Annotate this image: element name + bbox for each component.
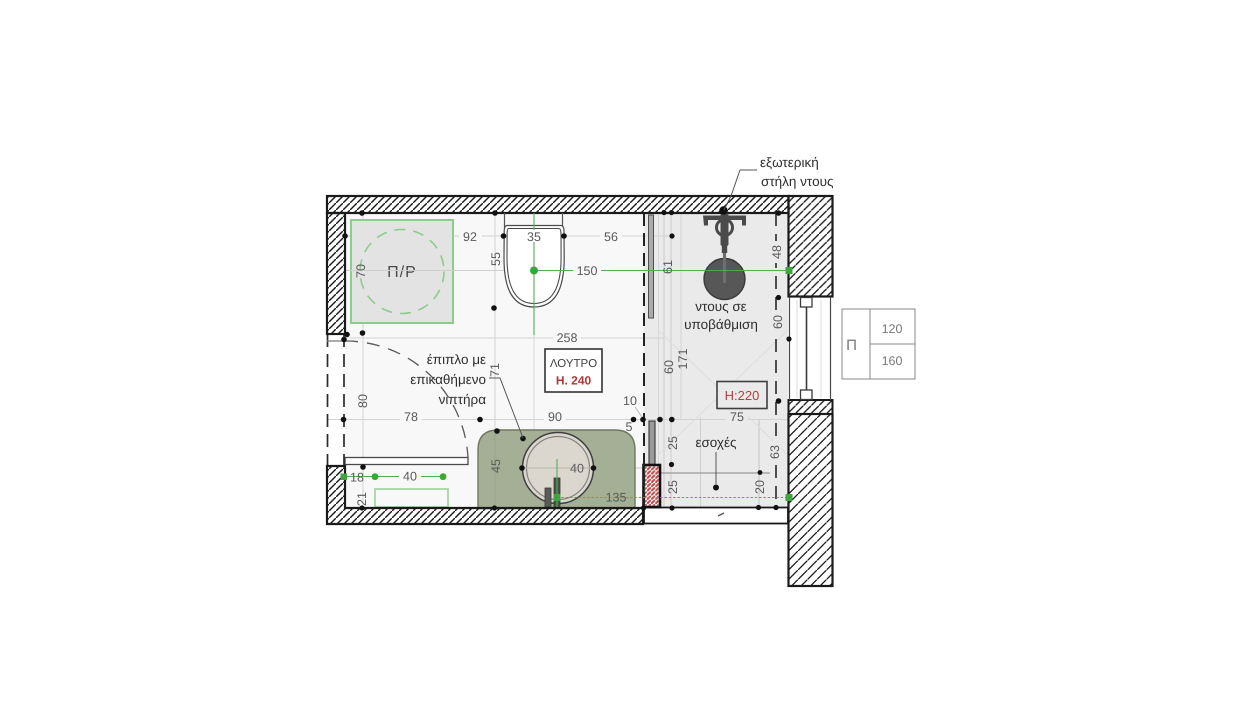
svg-text:18: 18 bbox=[350, 471, 364, 485]
svg-text:5: 5 bbox=[626, 420, 633, 434]
svg-text:160: 160 bbox=[882, 354, 903, 368]
svg-text:εσοχές: εσοχές bbox=[695, 435, 737, 450]
svg-text:έπιπλο με: έπιπλο με bbox=[427, 352, 486, 367]
svg-text:135: 135 bbox=[606, 491, 627, 505]
svg-text:63: 63 bbox=[768, 445, 782, 459]
svg-text:258: 258 bbox=[557, 331, 578, 345]
svg-text:70: 70 bbox=[354, 264, 368, 278]
svg-text:171: 171 bbox=[676, 349, 690, 370]
svg-text:ΛΟΥΤΡΟ: ΛΟΥΤΡΟ bbox=[550, 358, 597, 370]
svg-text:21: 21 bbox=[355, 492, 369, 506]
svg-text:56: 56 bbox=[604, 230, 618, 244]
svg-text:25: 25 bbox=[666, 436, 680, 450]
svg-text:120: 120 bbox=[882, 322, 903, 336]
svg-text:Π/Ρ: Π/Ρ bbox=[387, 264, 417, 281]
svg-text:90: 90 bbox=[548, 410, 562, 424]
svg-text:20: 20 bbox=[753, 480, 767, 494]
svg-text:υποβάθμιση: υποβάθμιση bbox=[684, 317, 758, 332]
svg-text:40: 40 bbox=[570, 462, 584, 476]
svg-text:45: 45 bbox=[489, 459, 503, 473]
svg-text:ντους σε: ντους σε bbox=[695, 299, 746, 314]
svg-text:επικαθήμενο: επικαθήμενο bbox=[410, 372, 486, 387]
svg-text:71: 71 bbox=[488, 363, 502, 377]
svg-text:55: 55 bbox=[489, 252, 503, 266]
svg-text:75: 75 bbox=[730, 410, 744, 424]
svg-text:60: 60 bbox=[771, 315, 785, 329]
svg-text:61: 61 bbox=[661, 260, 675, 274]
svg-text:40: 40 bbox=[403, 470, 417, 484]
svg-text:78: 78 bbox=[404, 410, 418, 424]
svg-text:35: 35 bbox=[527, 230, 541, 244]
svg-text:25: 25 bbox=[666, 480, 680, 494]
svg-text:92: 92 bbox=[463, 230, 477, 244]
svg-text:H. 240: H. 240 bbox=[556, 374, 592, 388]
svg-text:150: 150 bbox=[577, 264, 598, 278]
svg-text:80: 80 bbox=[356, 394, 370, 408]
svg-text:νιπτήρα: νιπτήρα bbox=[439, 392, 487, 407]
svg-text:στήλη ντους: στήλη ντους bbox=[761, 174, 834, 189]
svg-text:H:220: H:220 bbox=[725, 388, 760, 403]
svg-text:εξωτερική: εξωτερική bbox=[760, 155, 819, 170]
svg-text:60: 60 bbox=[662, 360, 676, 374]
svg-text:48: 48 bbox=[770, 245, 784, 259]
svg-text:10: 10 bbox=[623, 394, 637, 408]
svg-text:Π: Π bbox=[846, 337, 857, 354]
